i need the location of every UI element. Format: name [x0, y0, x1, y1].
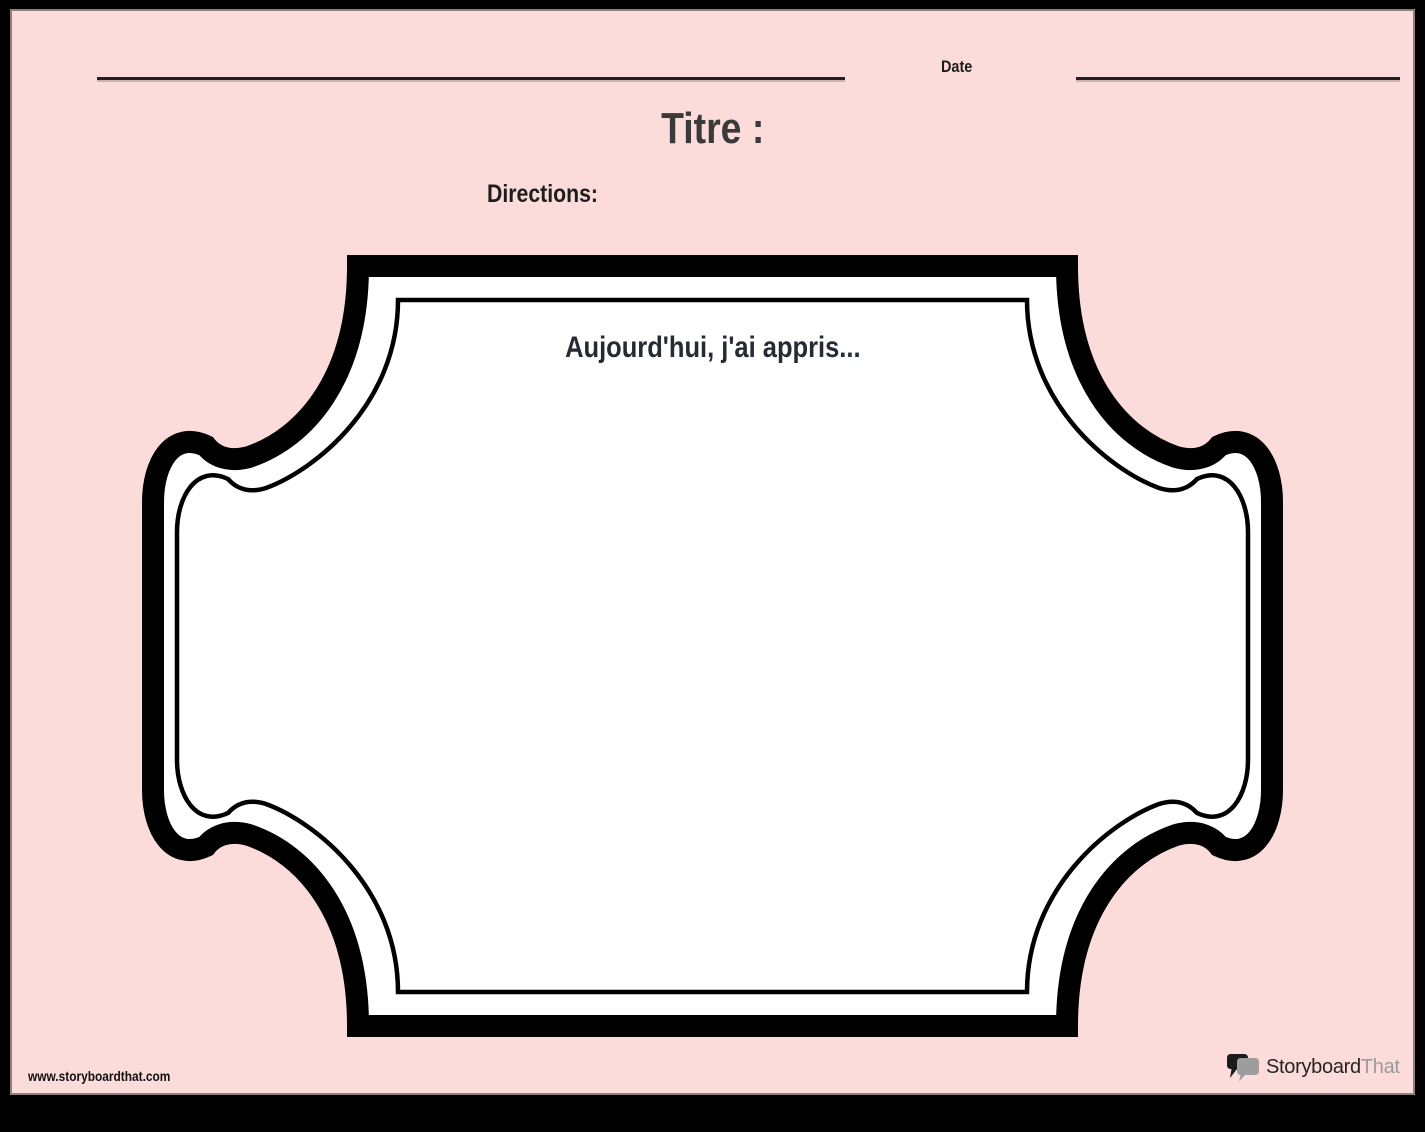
footer-url: www.storyboardthat.com	[28, 1068, 170, 1084]
logo-text-secondary: That	[1361, 1056, 1400, 1078]
logo-text-primary: Storyboard	[1266, 1056, 1361, 1078]
storyboardthat-logo: StoryboardThat	[1225, 1052, 1400, 1082]
frame-prompt: Aujourd'hui, j'ai appris...	[565, 331, 860, 364]
logo-text: StoryboardThat	[1266, 1056, 1400, 1079]
worksheet-card: Date Titre : Directions: Aujourd'hui, j'…	[12, 11, 1413, 1093]
speech-bubbles-icon	[1225, 1052, 1261, 1082]
content-area[interactable]	[187, 311, 1237, 981]
